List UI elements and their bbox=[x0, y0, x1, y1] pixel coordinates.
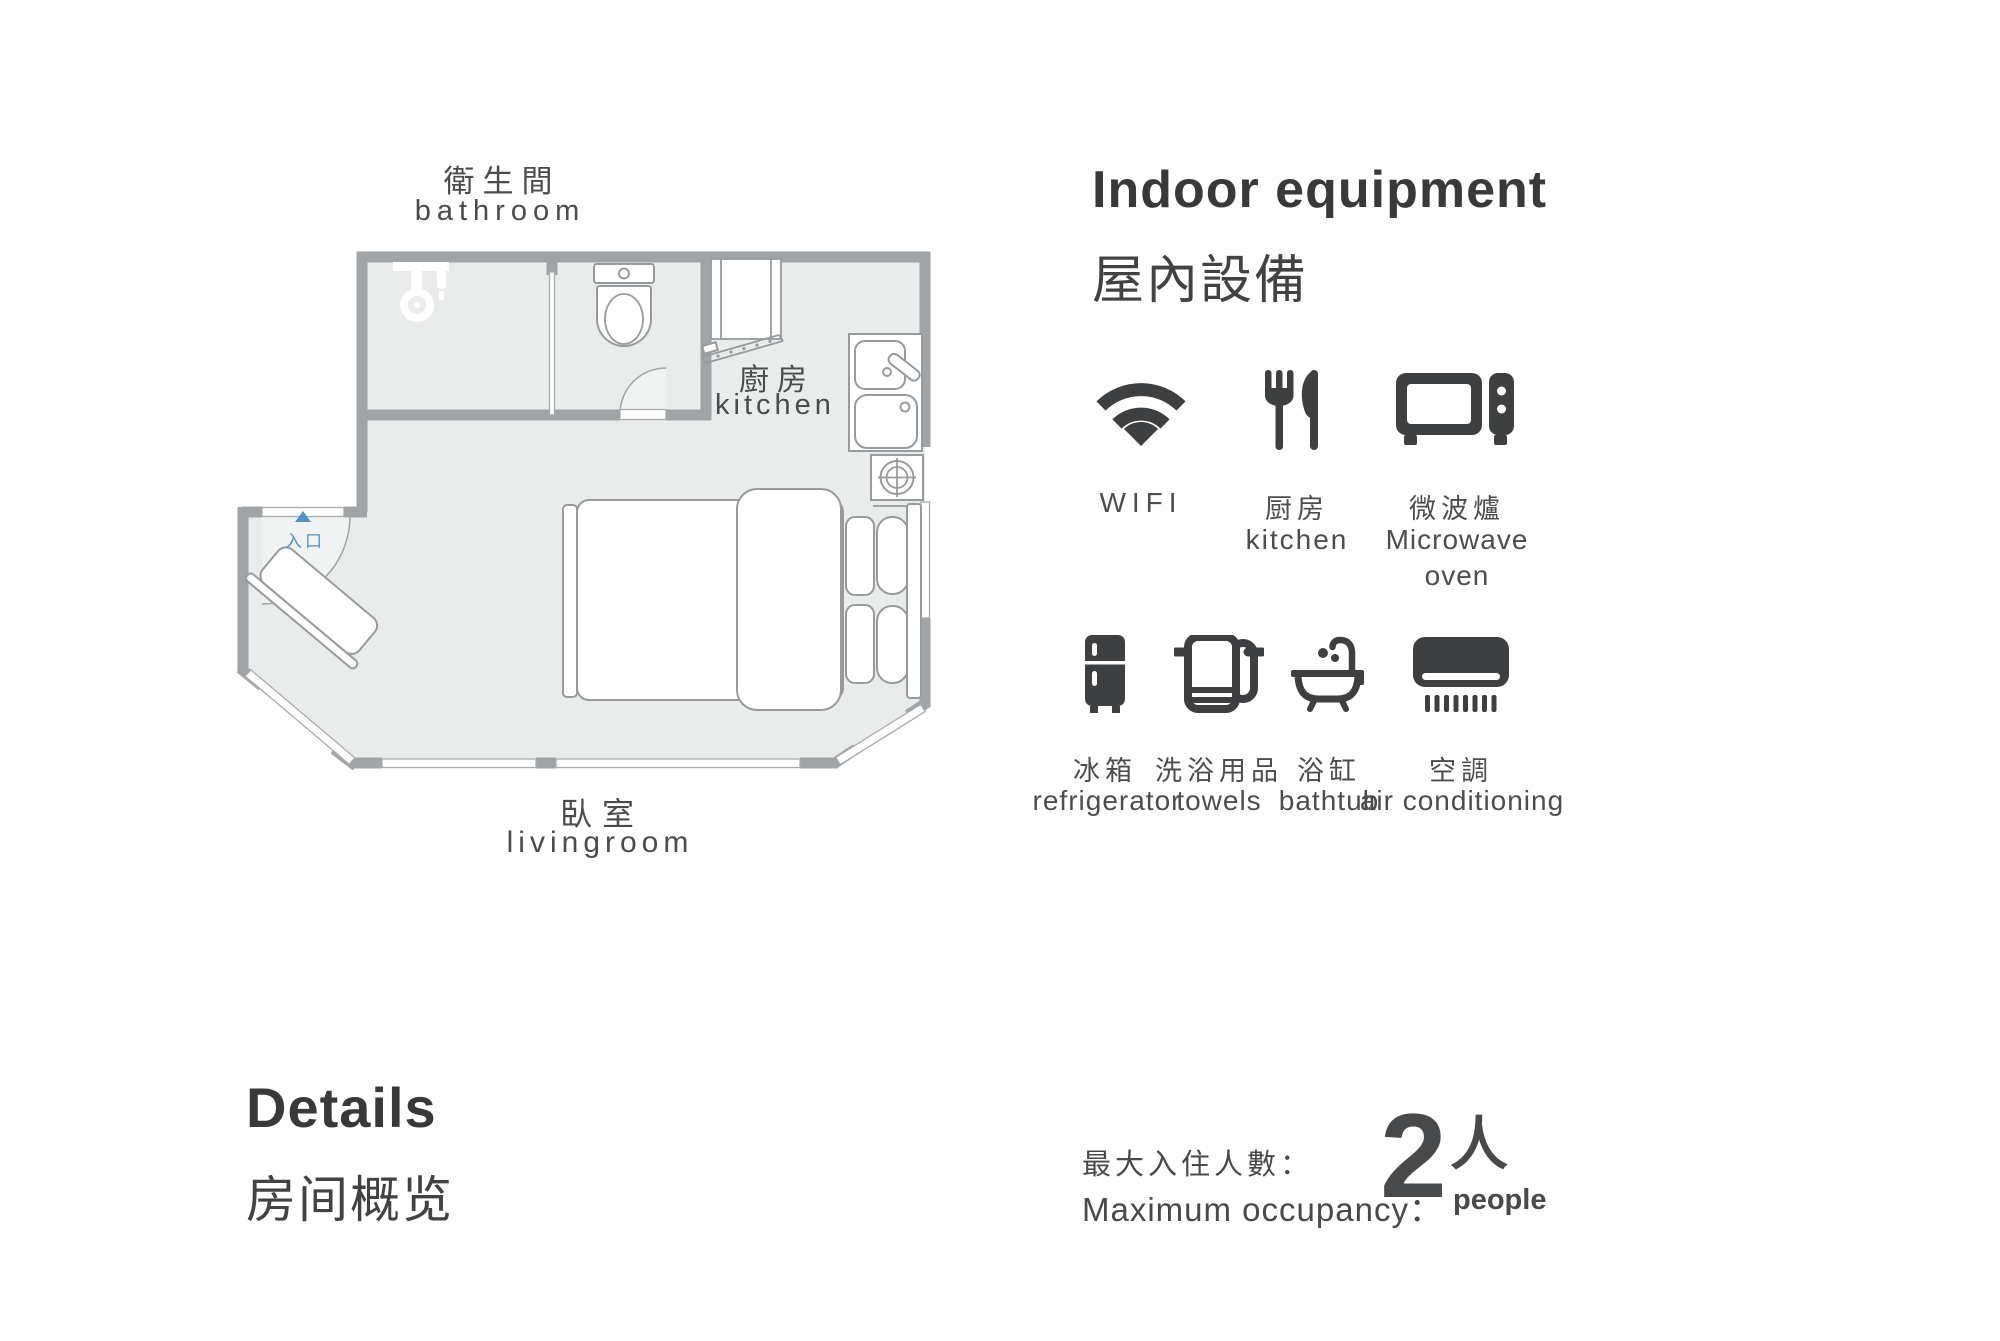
kitchen-sink bbox=[849, 334, 922, 451]
microwave-icon bbox=[1396, 369, 1514, 449]
details-title-en: Details bbox=[246, 1075, 437, 1140]
towels-icon bbox=[1174, 635, 1264, 713]
toilet-icon bbox=[594, 264, 654, 346]
occupancy-unit-en: people bbox=[1453, 1184, 1546, 1217]
equipment-title-en: Indoor equipment bbox=[1092, 160, 1547, 220]
wifi-icon bbox=[1091, 372, 1191, 450]
microwave-label-en: Microwave bbox=[1386, 524, 1529, 556]
towels-label-zh: 洗浴用品 bbox=[1155, 749, 1283, 788]
room-details-page: 入口 衛生間 bathroom 廚房 kitchen 臥室 livingroom… bbox=[0, 0, 2000, 1341]
stove-burner bbox=[871, 455, 923, 500]
refrigerator-label-en: refrigerator bbox=[1033, 785, 1182, 817]
microwave-label-en2: oven bbox=[1425, 560, 1490, 592]
towels-label-en: towels bbox=[1176, 785, 1261, 817]
kitchen-label-en: kitchen bbox=[1246, 524, 1349, 556]
bathtub-label-zh: 浴缸 bbox=[1297, 749, 1361, 788]
entrance-label: 入口 bbox=[285, 527, 325, 552]
occupancy-count: 2 bbox=[1380, 1096, 1447, 1216]
occupancy-unit-zh: 人 bbox=[1450, 1116, 1508, 1174]
microwave-label-zh: 微波爐 bbox=[1409, 487, 1505, 526]
floor-plan bbox=[200, 245, 960, 790]
refrigerator-label-zh: 冰箱 bbox=[1073, 749, 1137, 788]
wifi-label: WIFI bbox=[1099, 487, 1182, 519]
entrance-arrow-icon bbox=[295, 511, 311, 522]
kitchen-cabinet bbox=[711, 259, 781, 339]
air-conditioning-label-en: air conditioning bbox=[1360, 785, 1564, 817]
bathtub-icon bbox=[1289, 632, 1369, 712]
occupancy-label-zh: 最大入住人數： bbox=[1082, 1141, 1313, 1183]
kitchen-icon bbox=[1263, 370, 1327, 450]
kitchen-label-zh: 厨房 bbox=[1265, 487, 1329, 526]
details-title-zh: 房间概览 bbox=[246, 1160, 454, 1232]
air-conditioning-label-zh: 空調 bbox=[1429, 749, 1493, 788]
plan-label-bathroom-en: bathroom bbox=[415, 195, 586, 228]
plan-label-livingroom-en: livingroom bbox=[507, 826, 694, 860]
air-conditioning-icon bbox=[1413, 637, 1509, 715]
refrigerator-icon bbox=[1085, 635, 1125, 715]
plan-label-kitchen-en: kitchen bbox=[715, 389, 835, 422]
equipment-title-zh: 屋內設備 bbox=[1092, 238, 1308, 313]
